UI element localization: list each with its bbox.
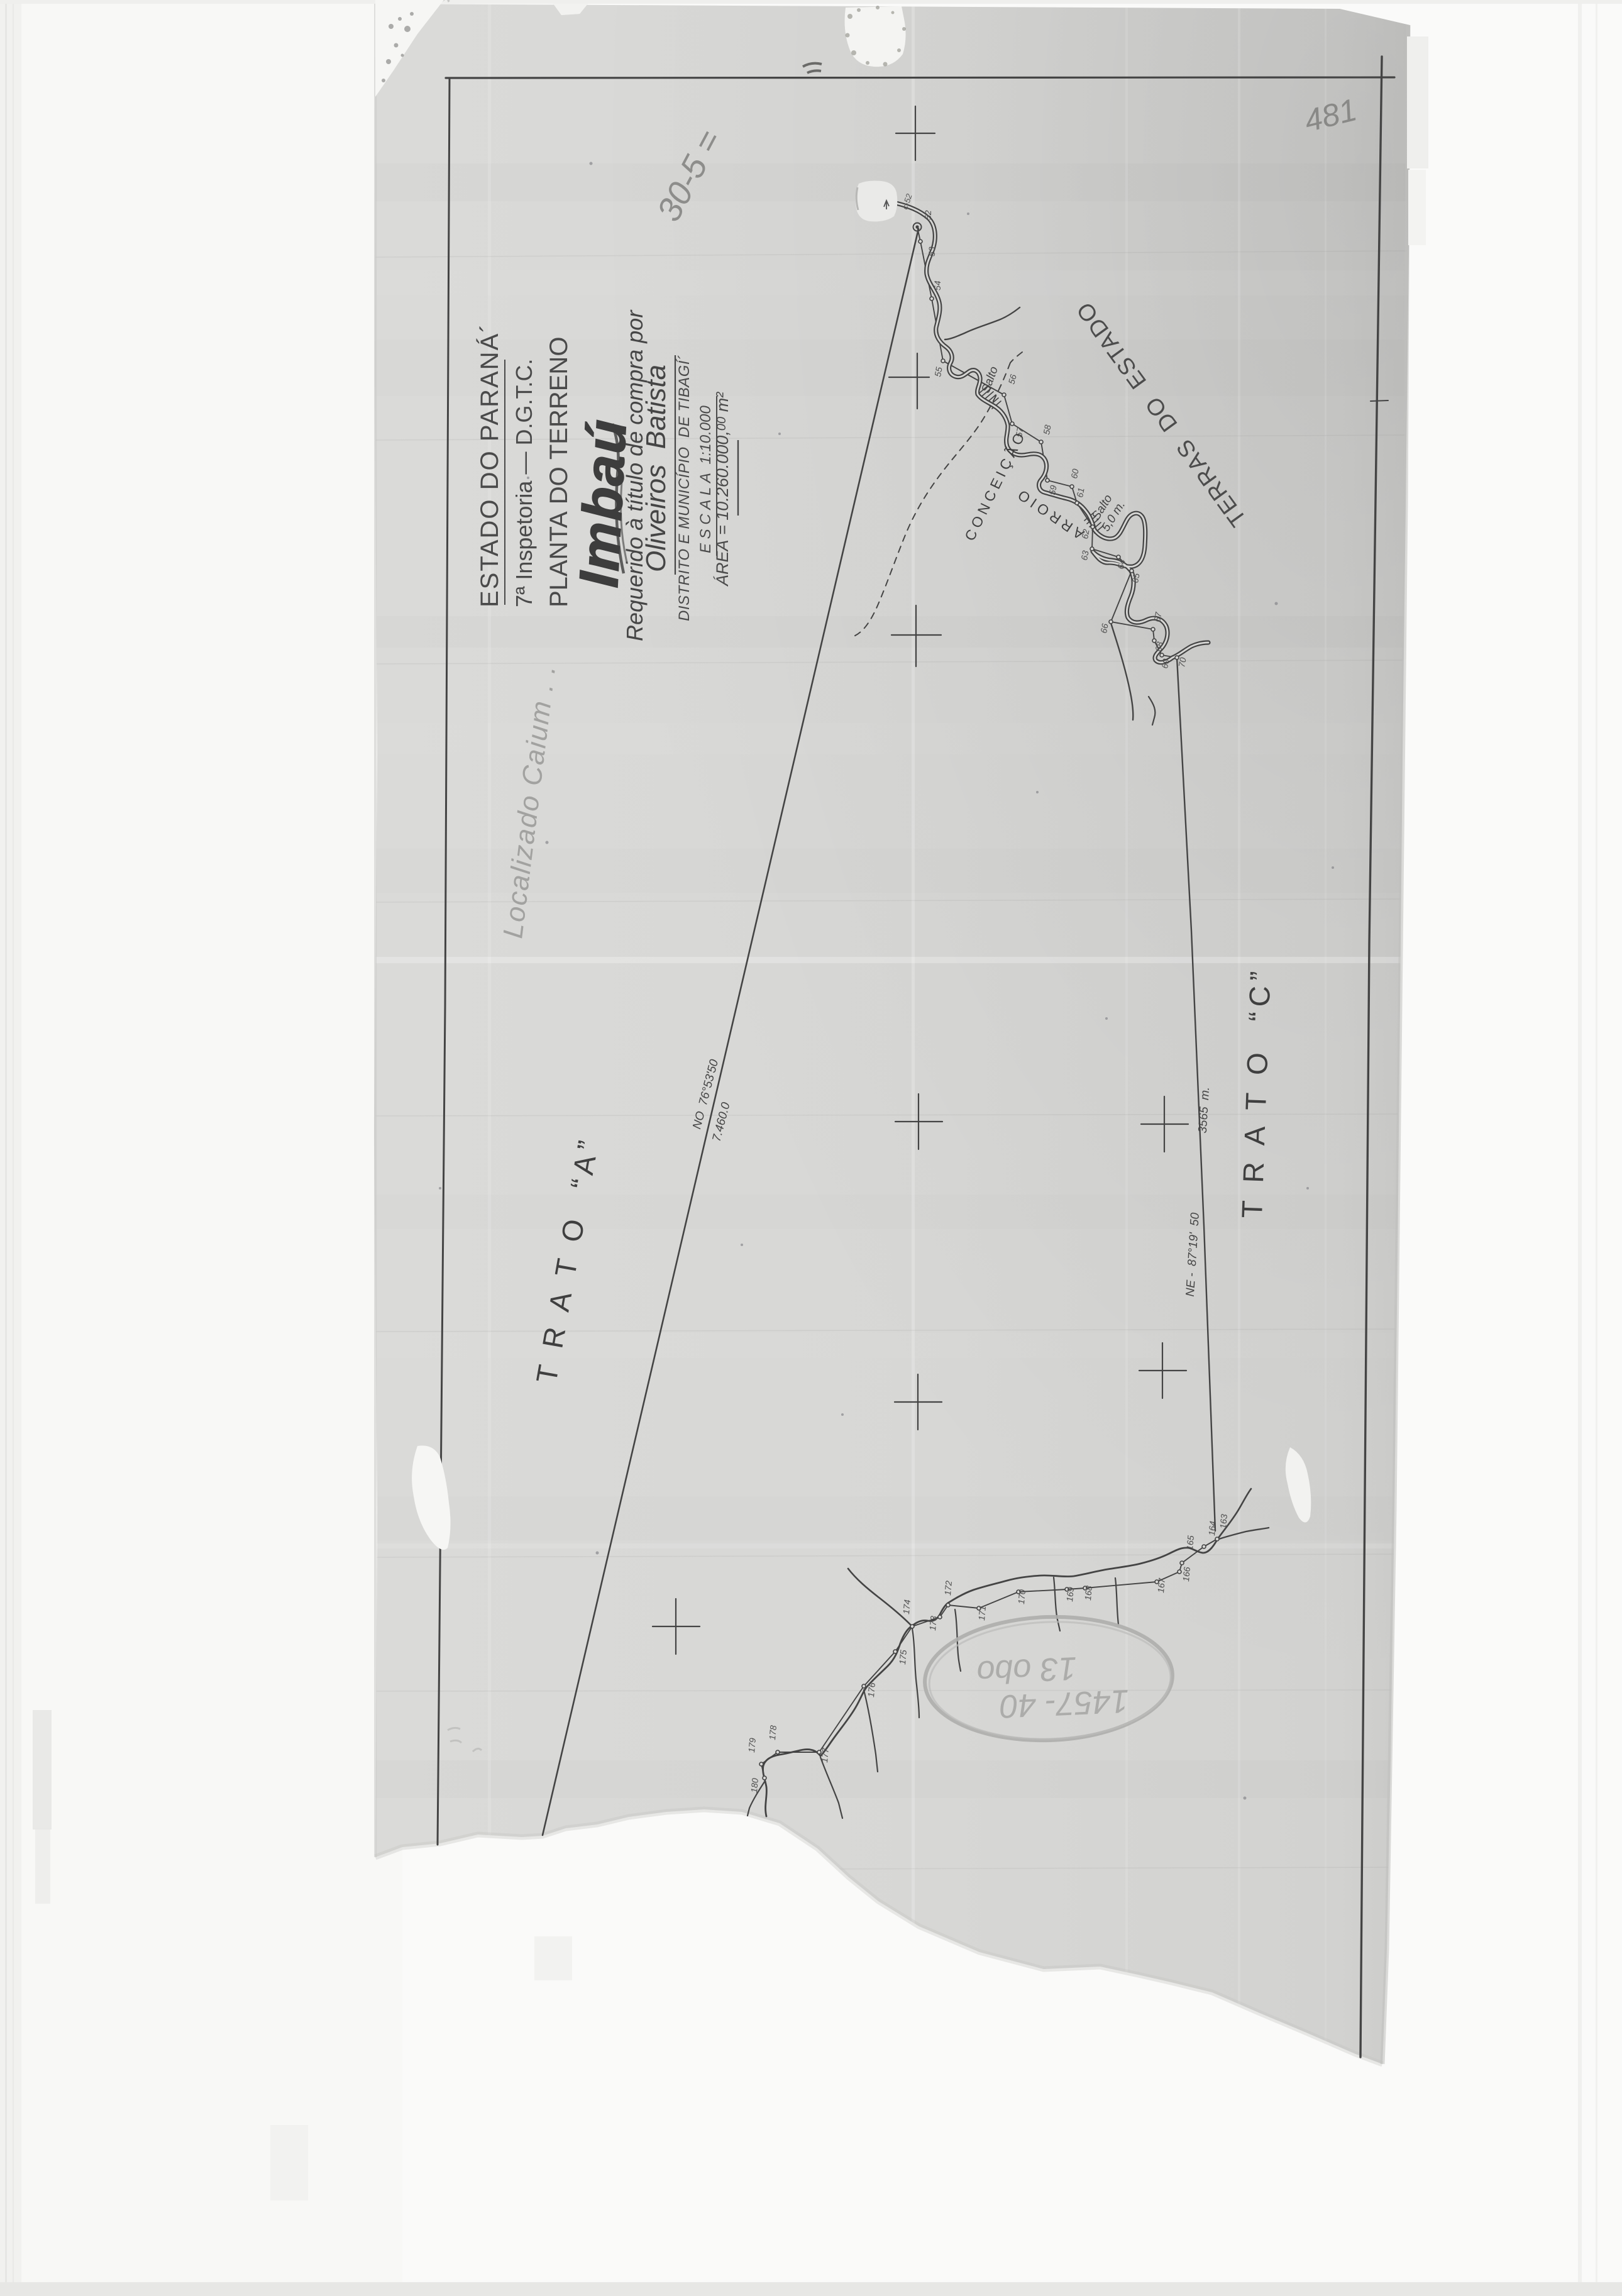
svg-text:64: 64 (1115, 558, 1127, 570)
svg-text:66: 66 (1098, 622, 1110, 634)
svg-text:170: 170 (1016, 1589, 1027, 1604)
svg-text:178: 178 (767, 1725, 778, 1740)
svg-text:177: 177 (819, 1747, 830, 1763)
svg-text:164: 164 (1206, 1520, 1218, 1536)
svg-text:52: 52 (923, 210, 933, 220)
svg-text:E S C A L A 1:10.000: E S C A L A 1:10.000 (697, 406, 714, 553)
svg-text:166: 166 (1181, 1566, 1192, 1582)
svg-text:60: 60 (1069, 468, 1080, 479)
svg-text:163: 163 (1218, 1513, 1229, 1529)
svg-text:DISTRITO E MUNICÍPIO DE TIBAG: DISTRITO E MUNICÍPIO DE TIBAGÍ´ (676, 355, 693, 621)
svg-text:ESTADO DO PARANÁ´: ESTADO DO PARANÁ´ (475, 323, 504, 607)
svg-text:59: 59 (1047, 484, 1058, 495)
svg-text:180: 180 (749, 1777, 760, 1793)
svg-text:176: 176 (866, 1682, 877, 1697)
svg-text:58: 58 (1041, 424, 1052, 435)
svg-text:7ª Inspetoria — D.G.T.C.: 7ª Inspetoria — D.G.T.C. (511, 359, 537, 607)
svg-text:168: 168 (1083, 1585, 1094, 1601)
svg-text:13 obo: 13 obo (976, 1650, 1078, 1691)
svg-text:175: 175 (897, 1649, 908, 1665)
svg-text:55: 55 (932, 366, 944, 377)
svg-text:173: 173 (927, 1615, 939, 1631)
svg-text:179: 179 (746, 1737, 758, 1753)
svg-text:172: 172 (942, 1580, 954, 1596)
svg-text:174: 174 (901, 1599, 912, 1614)
svg-text:Oliveiros Batista: Oliveiros Batista (641, 365, 671, 572)
svg-text:167: 167 (1156, 1577, 1167, 1593)
svg-text:70: 70 (1176, 656, 1188, 668)
svg-text:165: 165 (1184, 1535, 1196, 1550)
svg-text:65: 65 (1130, 572, 1141, 583)
svg-text:69: 69 (1159, 658, 1171, 669)
svg-text:1457- 40: 1457- 40 (999, 1682, 1130, 1725)
svg-text:171: 171 (976, 1606, 988, 1621)
svg-text:61: 61 (1074, 487, 1086, 498)
svg-text:68: 68 (1153, 641, 1164, 652)
svg-text:63: 63 (1079, 549, 1090, 561)
svg-text:169: 169 (1064, 1586, 1076, 1602)
svg-text:53: 53 (927, 246, 937, 257)
svg-text:54: 54 (932, 280, 942, 290)
